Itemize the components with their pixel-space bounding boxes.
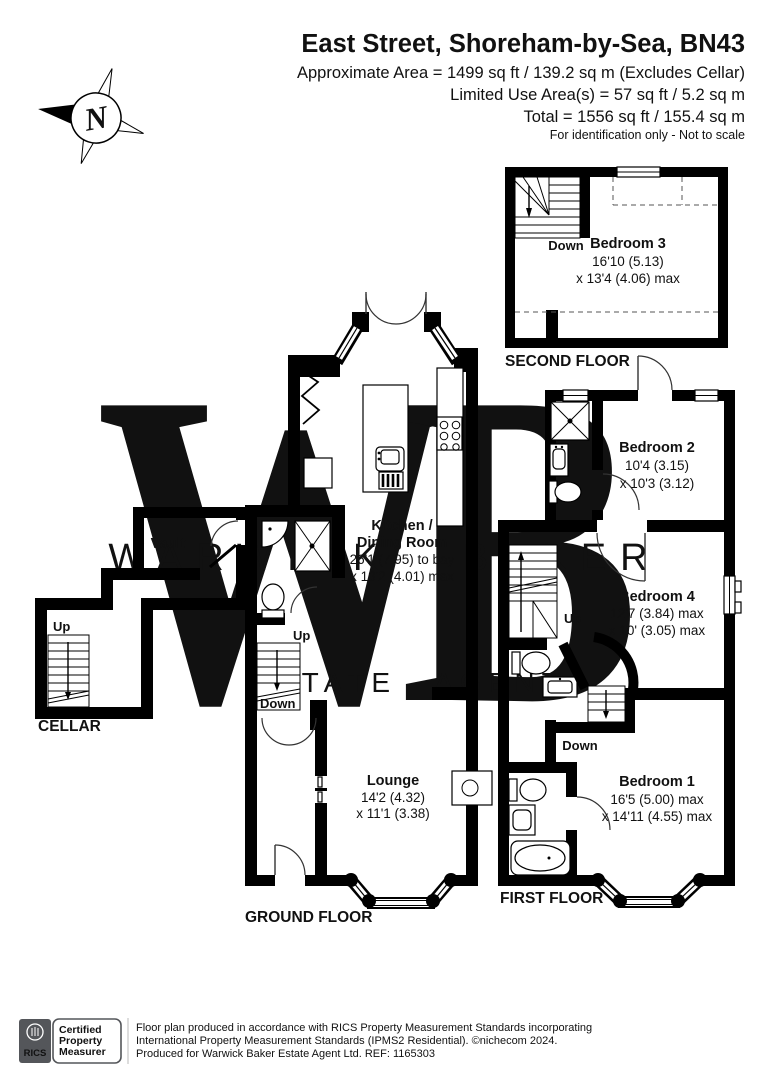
staircase-up <box>509 545 557 638</box>
shower-icon <box>551 402 589 440</box>
room-dim1: 16'5 (5.00) max <box>610 792 704 807</box>
room-name: Lounge <box>367 773 419 789</box>
room-vault-label: Vault <box>151 536 186 552</box>
room-dim2: x 13'2 (4.01) max <box>350 569 454 584</box>
staircase-up <box>48 635 89 707</box>
area-line2: Limited Use Area(s) = 57 sq ft / 5.2 sq … <box>450 86 745 104</box>
room-name: Bedroom 1 <box>619 774 695 790</box>
cert-line3: Measurer <box>59 1046 106 1058</box>
shower-icon <box>295 521 330 571</box>
toilet-icon <box>262 584 284 618</box>
stairs-up-label: Up <box>53 619 70 634</box>
room-dim2: x 13'4 (4.06) max <box>576 271 680 286</box>
rics-badge: RICS <box>19 1019 51 1063</box>
second-floor-label: SECOND FLOOR <box>505 353 630 370</box>
room-dim2: x 10' (3.05) max <box>609 623 706 638</box>
room-dim1: 16'10 (5.13) <box>592 254 664 269</box>
room-dim2: x 14'11 (4.55) max <box>602 809 713 824</box>
room-bedroom4: Bedroom 4 12'7 (3.84) max x 10' (3.05) m… <box>609 589 706 638</box>
second-floor-plan: Down Bedroom 3 16'10 (5.13) x 13'4 (4.06… <box>505 167 728 370</box>
room-name: Bedroom 2 <box>619 440 695 456</box>
footer-line2: International Property Measurement Stand… <box>136 1035 557 1047</box>
toilet-icon <box>549 481 581 503</box>
front-door <box>275 845 305 875</box>
kitchen-unit <box>304 458 332 488</box>
stairs-down-label: Down <box>562 738 597 753</box>
page-title: East Street, Shoreham-by-Sea, BN43 <box>301 30 745 58</box>
rics-wordmark: RICS <box>24 1048 47 1059</box>
room-bedroom2: Bedroom 2 10'4 (3.15) x 10'3 (3.12) <box>619 440 695 491</box>
stairs-down-label: Down <box>260 696 295 711</box>
room-bedroom3: Bedroom 3 16'10 (5.13) x 13'4 (4.06) max <box>576 236 680 286</box>
first-floor-label: FIRST FLOOR <box>500 890 603 907</box>
room-name-line1: Kitchen / <box>371 518 432 534</box>
window <box>724 576 741 614</box>
bay-window <box>344 873 458 908</box>
bathtub-icon <box>511 841 570 875</box>
stairs-up-label: Up <box>564 611 581 626</box>
staircase-down <box>588 686 625 722</box>
door-arc <box>638 356 672 390</box>
room-dim2: x 10'3 (3.12) <box>620 476 695 491</box>
room-dim1: 12'7 (3.84) max <box>610 606 704 621</box>
window <box>617 167 660 177</box>
room-dim1: 26'1 (7.95) to bay <box>350 552 455 567</box>
toilet-icon <box>509 779 546 801</box>
stairs-up-label: Up <box>293 628 310 643</box>
floorplan-image: W B WARWICK BAKER ESTATE AGENT East Stre… <box>0 0 764 1080</box>
stairs-down-label: Down <box>548 238 583 253</box>
kitchen-counter <box>437 368 463 526</box>
ground-floor-label: GROUND FLOOR <box>245 909 372 926</box>
compass-icon: N <box>28 51 160 179</box>
footer-line3: Produced for Warwick Baker Estate Agent … <box>136 1048 435 1060</box>
toilet-icon <box>512 652 550 674</box>
window <box>563 390 718 401</box>
disclaimer-note: For identification only - Not to scale <box>550 128 745 142</box>
header: East Street, Shoreham-by-Sea, BN43 Appro… <box>297 30 745 142</box>
sink-icon <box>550 444 568 476</box>
cellar-label: CELLAR <box>38 718 101 735</box>
room-name: Bedroom 4 <box>619 589 695 605</box>
room-dim2: x 11'1 (3.38) <box>356 806 430 821</box>
area-line1: Approximate Area = 1499 sq ft / 139.2 sq… <box>297 64 745 82</box>
room-dim1: 14'2 (4.32) <box>361 790 425 805</box>
room-dim1: 10'4 (3.15) <box>625 458 689 473</box>
footer: RICS Certified Property Measurer Floor p… <box>19 1018 592 1064</box>
fireplace <box>452 771 492 805</box>
certified-measurer-badge: Certified Property Measurer <box>53 1019 121 1063</box>
kitchen-island <box>363 385 408 492</box>
sink-icon <box>509 805 535 835</box>
floorplan-page: W B WARWICK BAKER ESTATE AGENT East Stre… <box>0 0 764 1080</box>
room-lounge: Lounge 14'2 (4.32) x 11'1 (3.38) <box>356 773 430 821</box>
room-bedroom1: Bedroom 1 16'5 (5.00) max x 14'11 (4.55)… <box>602 774 713 824</box>
staircase-down <box>515 177 580 238</box>
hob-icon <box>437 417 462 450</box>
room-name-line2: Dining Room <box>357 535 447 551</box>
sink-icon <box>543 677 577 697</box>
bay-window <box>591 873 707 908</box>
footer-line1: Floor plan produced in accordance with R… <box>136 1022 592 1034</box>
area-line3: Total = 1556 sq ft / 155.4 sq m <box>523 108 745 126</box>
room-name: Bedroom 3 <box>590 236 666 252</box>
